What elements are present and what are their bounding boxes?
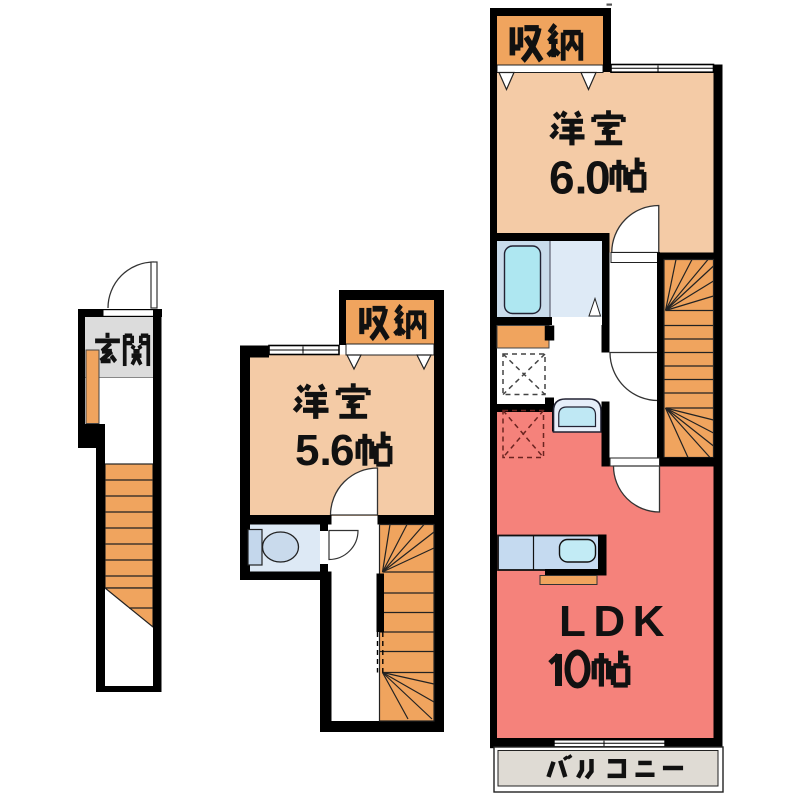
svg-text:6: 6 [330, 426, 354, 475]
svg-text:6.: 6. [549, 152, 587, 204]
svg-text:LDK: LDK [559, 597, 672, 646]
svg-text:5.: 5. [295, 426, 332, 475]
svg-text:0: 0 [585, 152, 611, 204]
